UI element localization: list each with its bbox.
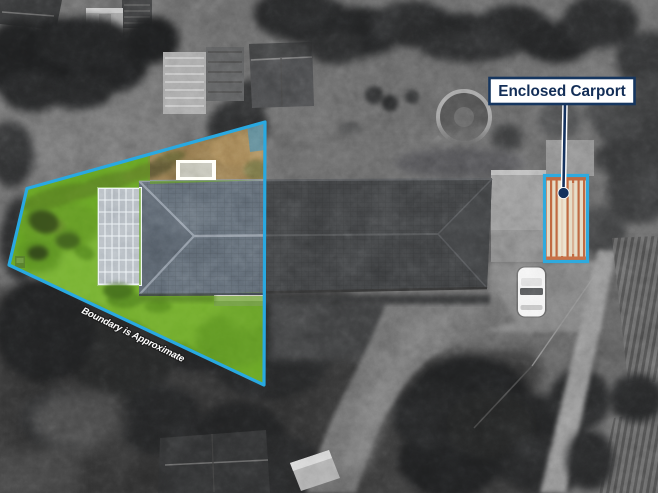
svg-text:Enclosed Carport: Enclosed Carport	[498, 83, 626, 100]
